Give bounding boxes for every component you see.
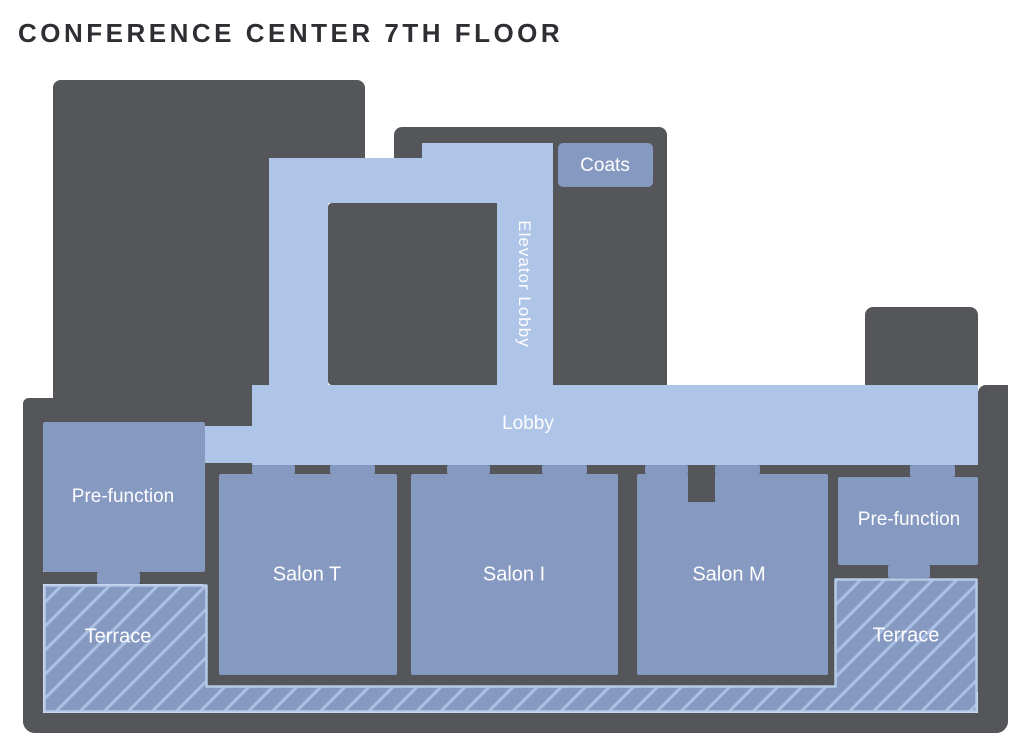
terrace-shape <box>45 580 977 712</box>
door-opening <box>542 465 587 474</box>
wall-tab-salon-m <box>688 474 715 502</box>
terrace-left-label: Terrace <box>85 626 152 649</box>
corridor-left-band <box>269 158 328 385</box>
prefunction-right-label: Pre-function <box>858 509 960 531</box>
elevator-lobby-label: Elevator Lobby <box>514 220 534 347</box>
door-opening <box>910 465 955 477</box>
wall-outer-left <box>23 398 43 733</box>
wall-outer-bottom <box>23 713 1008 733</box>
floor-plan: CONFERENCE CENTER 7TH FLOOR <box>0 0 1024 749</box>
lobby-area <box>252 385 978 465</box>
salon-m-label: Salon M <box>692 564 765 587</box>
door-opening-prefunction-right-terrace <box>888 565 930 578</box>
door-opening <box>645 465 688 474</box>
coats-label: Coats <box>580 155 630 177</box>
page-title: CONFERENCE CENTER 7TH FLOOR <box>18 18 563 49</box>
wall-block-top-left-body <box>53 80 270 405</box>
door-opening <box>715 465 760 474</box>
wall-block-top-right <box>865 307 978 385</box>
salon-i-label: Salon I <box>483 564 545 587</box>
terrace-area <box>43 578 978 713</box>
door-opening <box>252 465 295 474</box>
lobby-left-extension <box>205 426 253 463</box>
wall-outer-right <box>978 385 1008 733</box>
salon-t-label: Salon T <box>273 564 342 587</box>
wall-block-elevator-shaft <box>328 203 497 385</box>
terrace-right-label: Terrace <box>873 625 940 648</box>
door-opening <box>447 465 490 474</box>
prefunction-left-label: Pre-function <box>72 486 174 508</box>
lobby-label: Lobby <box>502 413 554 435</box>
door-opening <box>330 465 375 474</box>
